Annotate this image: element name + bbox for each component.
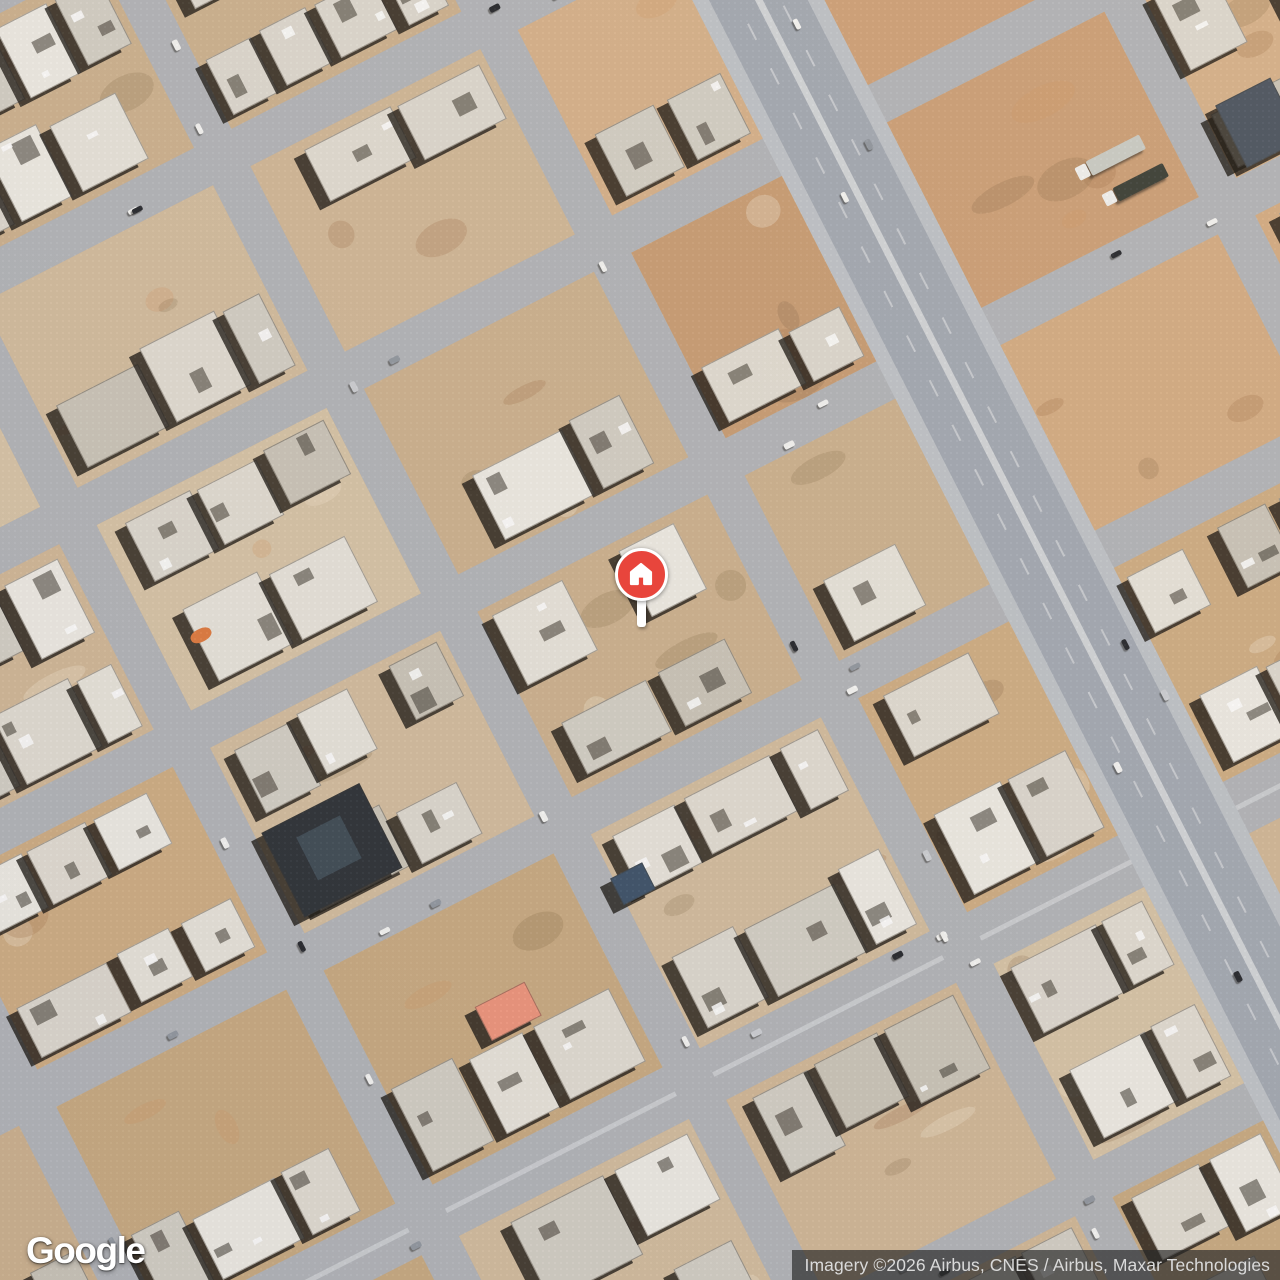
- building-detail: [296, 815, 362, 880]
- rooftop-unit: [408, 667, 423, 681]
- terrain-patch: [631, 0, 683, 25]
- rooftop-unit: [825, 333, 839, 347]
- building-courtyard: [1120, 1088, 1137, 1108]
- rooftop-unit: [111, 687, 124, 698]
- building-courtyard: [333, 0, 358, 23]
- rooftop-unit: [920, 1084, 929, 1092]
- terrain-patch: [323, 216, 359, 253]
- rooftop-unit: [563, 1042, 573, 1051]
- rooftop-unit: [70, 10, 85, 23]
- rooftop-unit: [258, 328, 272, 342]
- building-courtyard: [625, 141, 653, 170]
- building-courtyard: [538, 1220, 560, 1240]
- attribution-text: Imagery ©2026 Airbus, CNES / Airbus, Max…: [804, 1255, 1270, 1276]
- map-building: [117, 928, 193, 1003]
- building-courtyard: [657, 1156, 674, 1173]
- building-courtyard: [1257, 544, 1279, 562]
- satellite-imagery-layer: [0, 0, 1280, 1280]
- rooftop-unit: [1, 142, 13, 151]
- terrain-patch: [1247, 632, 1279, 657]
- terrain-patch: [506, 904, 569, 959]
- building-courtyard: [289, 1170, 311, 1191]
- terrain-patch: [1135, 454, 1163, 483]
- building-courtyard: [728, 364, 753, 385]
- rooftop-unit: [442, 810, 455, 820]
- building-courtyard: [562, 1019, 587, 1038]
- building-courtyard: [970, 807, 998, 832]
- building-courtyard: [1169, 588, 1188, 604]
- building-courtyard: [939, 1062, 959, 1078]
- rooftop-unit: [536, 602, 547, 612]
- rooftop-unit: [64, 624, 78, 635]
- building-courtyard: [1192, 1051, 1217, 1073]
- map-building: [491, 580, 598, 687]
- terrain-patch: [660, 890, 698, 921]
- rooftop-unit: [1029, 992, 1041, 1002]
- rooftop-unit: [979, 853, 990, 864]
- building-courtyard: [539, 620, 566, 641]
- rooftop-unit: [18, 733, 34, 748]
- building-courtyard: [710, 809, 733, 833]
- building-courtyard: [213, 1242, 233, 1258]
- building-courtyard: [806, 920, 828, 942]
- rooftop-unit: [502, 516, 515, 529]
- terrain-patch: [1223, 390, 1268, 428]
- rooftop-unit: [325, 753, 336, 765]
- terrain-patch: [249, 536, 274, 561]
- building-courtyard: [1, 721, 16, 737]
- building-courtyard: [293, 567, 315, 586]
- building-courtyard: [215, 928, 231, 944]
- rooftop-unit: [1163, 1025, 1178, 1037]
- map-building: [1199, 666, 1280, 763]
- map-building: [162, 0, 287, 10]
- building-courtyard: [1246, 702, 1272, 721]
- map-building: [533, 989, 645, 1100]
- building-courtyard: [775, 1107, 803, 1136]
- terrain-patch: [710, 564, 752, 606]
- building-courtyard: [1172, 0, 1200, 21]
- rooftop-unit: [41, 69, 51, 78]
- rooftop-unit: [1226, 697, 1243, 712]
- rooftop-unit: [86, 130, 99, 140]
- rooftop-unit: [281, 25, 295, 39]
- rooftop-unit: [252, 1237, 263, 1246]
- terrain-patch: [882, 1155, 914, 1180]
- terrain-patch: [409, 210, 473, 265]
- rooftop-unit: [159, 557, 172, 570]
- rooftop-unit: [743, 817, 757, 827]
- terrain-patch: [401, 975, 456, 1015]
- terrain-patch: [917, 1102, 978, 1143]
- terrain-patch: [1034, 394, 1067, 419]
- google-logo[interactable]: Google: [26, 1230, 144, 1272]
- building-courtyard: [418, 1111, 433, 1127]
- building-courtyard: [452, 92, 478, 117]
- terrain-patch: [1006, 73, 1081, 131]
- building-courtyard: [1239, 1179, 1267, 1207]
- terrain-patch: [1059, 206, 1090, 233]
- rooftop-unit: [381, 120, 394, 131]
- building-courtyard: [150, 1229, 170, 1252]
- building-courtyard: [32, 569, 62, 599]
- building-courtyard: [661, 845, 689, 872]
- building-courtyard: [699, 667, 727, 694]
- rooftop-unit: [413, 0, 429, 13]
- terrain-patch: [966, 168, 1038, 220]
- building-courtyard: [31, 33, 55, 54]
- rooftop-unit: [1240, 557, 1255, 570]
- building-courtyard: [158, 521, 178, 540]
- building-courtyard: [189, 367, 212, 393]
- building-courtyard: [1181, 1213, 1205, 1232]
- building-courtyard: [695, 121, 715, 145]
- building-courtyard: [907, 709, 921, 724]
- terrain-patch: [121, 1094, 169, 1129]
- terrain-patch: [787, 444, 850, 492]
- building-courtyard: [497, 1072, 522, 1092]
- map-building: [595, 104, 686, 197]
- rooftop-unit: [1266, 1205, 1280, 1218]
- terrain-patch: [741, 189, 787, 234]
- building-courtyard: [1026, 777, 1049, 797]
- building-courtyard: [296, 433, 316, 457]
- building-courtyard: [589, 430, 612, 454]
- building-courtyard: [64, 861, 81, 880]
- building-courtyard: [1127, 947, 1147, 966]
- building-courtyard: [97, 20, 115, 36]
- rooftop-unit: [711, 81, 721, 92]
- terrain-patch: [501, 376, 549, 410]
- building-courtyard: [135, 825, 151, 839]
- building-courtyard: [10, 135, 40, 165]
- building-courtyard: [252, 771, 278, 798]
- rooftop-unit: [617, 422, 631, 435]
- building-courtyard: [1042, 979, 1058, 997]
- attribution-bar: Imagery ©2026 Airbus, CNES / Airbus, Max…: [792, 1250, 1280, 1280]
- rooftop-unit: [686, 696, 702, 709]
- building-courtyard: [16, 891, 32, 907]
- rooftop-unit: [94, 1013, 107, 1026]
- building-courtyard: [852, 580, 876, 606]
- building-courtyard: [352, 144, 373, 162]
- building-courtyard: [587, 737, 612, 760]
- rooftop-unit: [0, 894, 8, 905]
- building-courtyard: [227, 74, 247, 98]
- rooftop-unit: [375, 10, 386, 21]
- building-courtyard: [421, 810, 440, 834]
- building-courtyard: [486, 472, 507, 495]
- rooftop-unit: [1195, 20, 1210, 31]
- building-courtyard: [396, 0, 413, 4]
- building-courtyard: [210, 502, 230, 522]
- map-building: [181, 898, 256, 972]
- building-courtyard: [410, 686, 437, 714]
- rooftop-unit: [319, 1213, 330, 1223]
- rooftop-unit: [798, 761, 809, 770]
- map-viewport[interactable]: Google Imagery ©2026 Airbus, CNES / Airb…: [0, 0, 1280, 1280]
- building-courtyard: [29, 999, 58, 1026]
- building-courtyard: [257, 612, 282, 640]
- map-building: [1217, 504, 1280, 589]
- rooftop-unit: [1135, 930, 1146, 942]
- terrain-patch: [210, 1106, 245, 1148]
